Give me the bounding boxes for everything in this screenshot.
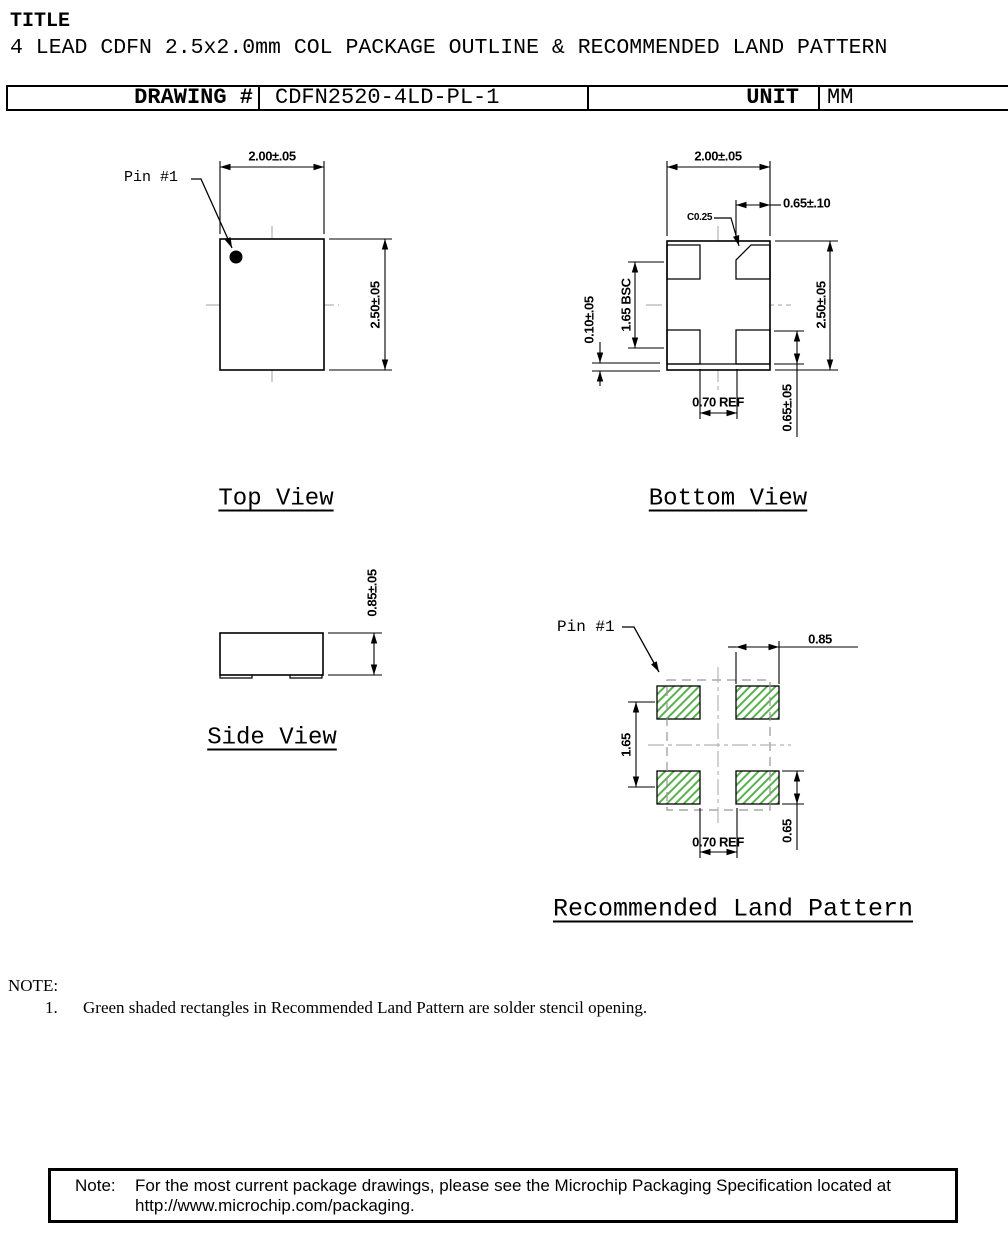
bottom-view-width-dim-label: 2.00±.05: [694, 149, 741, 164]
bottom-view-height-dim-label: 2.50±.05: [814, 281, 829, 328]
top-view-width-dim-label: 2.00±.05: [248, 149, 295, 164]
top-view-drawing: [191, 161, 392, 386]
pin1-leader-line: [191, 179, 232, 248]
land-pad-height-dim-label: 0.65: [780, 819, 795, 843]
land-pad-width-dim-label: 0.85: [808, 632, 832, 647]
stencil-pad-bottom-right: [736, 771, 779, 804]
top-view-title: Top View: [218, 486, 333, 513]
land-pin1-leader-line: [622, 627, 659, 672]
bottom-view-title: Bottom View: [649, 486, 807, 513]
drawing-sheet: TITLE 4 LEAD CDFN 2.5x2.0mm COL PACKAGE …: [0, 0, 1008, 1234]
bottom-view-chamfer-dim-label: C0.25: [687, 212, 712, 223]
bottom-view-package-outline: [667, 241, 770, 370]
land-pin1-label: Pin #1: [557, 618, 615, 636]
top-view-height-dim-label: 2.50±.05: [368, 281, 383, 328]
bottom-view-pad-pitch-dim-label: 1.65 BSC: [619, 278, 634, 331]
side-view-drawing: [220, 633, 382, 678]
bottom-view-step-dim-label: 0.10±.05: [582, 296, 597, 343]
land-pattern-extension-lines: [628, 641, 858, 858]
footer-note-label: Note:: [75, 1176, 135, 1216]
land-pattern-drawing: [622, 627, 858, 858]
land-pad-pitch-dim-label: 1.65: [619, 733, 634, 757]
side-view-package-outline: [220, 633, 323, 675]
bottom-view-pad-height-dim-label: 0.65±.05: [780, 384, 795, 431]
land-pattern-title: Recommended Land Pattern: [553, 895, 913, 924]
note-item-number: 1.: [45, 998, 83, 1018]
stencil-pad-top-right: [736, 686, 779, 719]
footer-note-box: Note: For the most current package drawi…: [48, 1168, 958, 1223]
bottom-view-pad-width-dim-label: 0.65±.10: [783, 196, 830, 211]
top-view-pin1-label: Pin #1: [124, 169, 178, 186]
footer-note-line2: http://www.microchip.com/packaging.: [135, 1196, 955, 1216]
side-view-height-dim-label: 0.85±.05: [365, 569, 380, 616]
notes-heading: NOTE:: [8, 976, 58, 996]
bottom-view-pad-gap-dim-label: 0.70 REF: [692, 395, 744, 410]
stencil-pad-top-left: [657, 686, 700, 719]
note-item: 1.Green shaded rectangles in Recommended…: [45, 998, 647, 1018]
note-item-text: Green shaded rectangles in Recommended L…: [83, 998, 647, 1017]
pin1-marker-dot: [230, 251, 243, 264]
stencil-pad-bottom-left: [657, 771, 700, 804]
land-pad-gap-dim-label: 0.70 REF: [692, 835, 744, 850]
footer-note-text: For the most current package drawings, p…: [135, 1176, 955, 1216]
footer-note-line1: For the most current package drawings, p…: [135, 1176, 955, 1196]
side-view-title: Side View: [207, 725, 337, 752]
